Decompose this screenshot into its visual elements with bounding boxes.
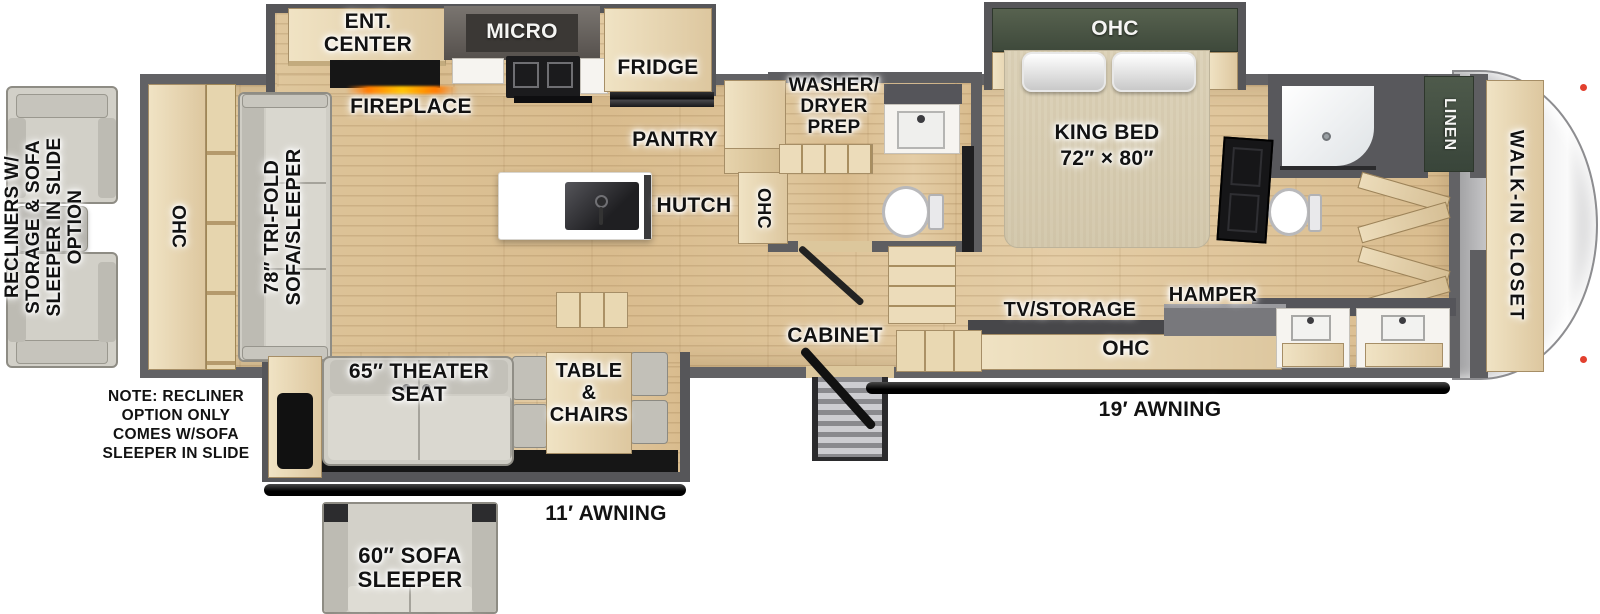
- mid-toilet: [882, 186, 946, 238]
- marker-light-top: [1580, 84, 1587, 91]
- shelf-board: [1357, 202, 1450, 244]
- tv-panel-line: [1230, 147, 1263, 187]
- recliner-option-label: RECLINERS W/ STORAGE & SOFA SLEEPER IN S…: [3, 77, 121, 377]
- vanity-sink-left: [1276, 308, 1350, 368]
- cabinet-label: CABINET: [776, 324, 894, 347]
- vanity-faucet: [1399, 317, 1406, 324]
- hamper-label: HAMPER: [1156, 284, 1270, 306]
- fireplace-glow: [346, 86, 458, 94]
- tv-storage-label: TV/STORAGE: [988, 299, 1152, 321]
- fridge-vent: [610, 92, 714, 107]
- linen-cabinet: LINEN: [1424, 76, 1474, 172]
- rear-cabinet-doors: [206, 84, 236, 370]
- recliner-note: NOTE: RECLINER OPTION ONLY COMES W/SOFA …: [92, 388, 260, 464]
- pantry-label: PANTRY: [622, 128, 728, 151]
- kitchen-counter-left: [452, 58, 504, 84]
- stove-burner: [513, 62, 539, 88]
- medicine-cabinet: [884, 84, 962, 104]
- slide-window: [277, 393, 313, 469]
- bedroom-steps: [888, 246, 956, 324]
- vanity-base: [1365, 343, 1443, 367]
- kitchen-overhead-cabinet: OHC: [738, 172, 788, 244]
- linen-label: LINEN: [1440, 98, 1458, 151]
- awning-19-label: 19′ AWNING: [1074, 398, 1246, 421]
- floorplan-canvas: RECLINERS W/ STORAGE & SOFA SLEEPER IN S…: [0, 0, 1600, 614]
- toilet-bowl: [882, 186, 930, 238]
- bath-sink-counter: [884, 104, 960, 154]
- awning-11-bar: [264, 484, 686, 496]
- bath-pocket-door: [962, 146, 974, 252]
- island-faucet: [595, 195, 608, 208]
- nightstand-right: [1208, 52, 1238, 90]
- closet-shelf-upper: [1358, 178, 1450, 238]
- vanity-faucet: [1307, 317, 1314, 324]
- micro-label: MICRO: [454, 20, 590, 43]
- washer-dryer-cabinet: [779, 144, 873, 174]
- sofa-sleeper-label: 60″ SOFA SLEEPER (OPT W/RECLINERS): [318, 520, 502, 614]
- stove-burner: [547, 62, 573, 88]
- shower-glass: [1280, 166, 1376, 170]
- shower-pan: [1282, 86, 1374, 166]
- toilet-tank: [1308, 194, 1322, 232]
- hutch-cabinet: [724, 148, 784, 174]
- fireplace: [330, 60, 440, 88]
- hutch-label: HUTCH: [648, 194, 740, 217]
- hamper-box: [1164, 304, 1286, 336]
- washer-dryer-label: WASHER/ DRYER PREP: [777, 76, 891, 139]
- kitchen-island: [498, 172, 652, 240]
- pillow-right: [1112, 52, 1196, 92]
- rear-overhead-cabinet: OHC: [148, 84, 206, 370]
- tri-fold-sofa-label: 78″ TRI-FOLD SOFA/SLEEPER: [261, 92, 313, 362]
- pillow-left: [1022, 52, 1106, 92]
- sofa-sleeper-main-label: 60″ SOFA SLEEPER: [318, 544, 502, 592]
- front-toilet: [1268, 184, 1324, 240]
- kitchen-ohc-label: OHC: [753, 188, 773, 229]
- range-handle: [514, 96, 592, 103]
- bedroom-ohc-label: OHC: [1050, 17, 1180, 40]
- island-faucet-spout: [599, 207, 603, 225]
- entry-cabinet: [896, 330, 982, 372]
- toilet-bowl: [1268, 188, 1310, 236]
- awning-19-bar: [866, 382, 1450, 394]
- bedroom-tv: [1216, 136, 1273, 243]
- tv-panel-line: [1227, 193, 1260, 233]
- vanity-base: [1282, 343, 1344, 367]
- bedroom-lower-ohc-label: OHC: [1086, 337, 1166, 360]
- shower-enclosure: [1268, 74, 1428, 178]
- bath-faucet: [917, 115, 925, 123]
- shower-drain: [1322, 132, 1331, 141]
- rear-ohc-label: OHC: [167, 205, 188, 248]
- table-chairs-label: TABLE & CHAIRS: [536, 360, 642, 426]
- vanity-sink-right: [1356, 308, 1450, 368]
- tv-storage-counter: [968, 320, 1180, 335]
- walk-in-closet-label: WALK-IN CLOSET: [1505, 130, 1526, 322]
- fridge-cabinet: [604, 8, 712, 92]
- awning-11-label: 11′ AWNING: [520, 502, 692, 525]
- theater-seat-label: 65″ THEATER SEAT: [324, 360, 514, 406]
- toilet-tank: [928, 194, 944, 230]
- walk-in-closet: WALK-IN CLOSET: [1486, 80, 1544, 372]
- range-stove: [506, 56, 580, 98]
- ent-center-label: ENT. CENTER: [298, 10, 438, 56]
- island-base-cabinet: [556, 292, 628, 328]
- fridge-label: FRIDGE: [608, 56, 708, 79]
- fireplace-label: FIREPLACE: [338, 95, 484, 118]
- marker-light-bottom: [1580, 356, 1587, 363]
- king-bed-label: KING BED 72″ × 80″: [1032, 120, 1182, 173]
- theater-end-frame: [268, 356, 322, 478]
